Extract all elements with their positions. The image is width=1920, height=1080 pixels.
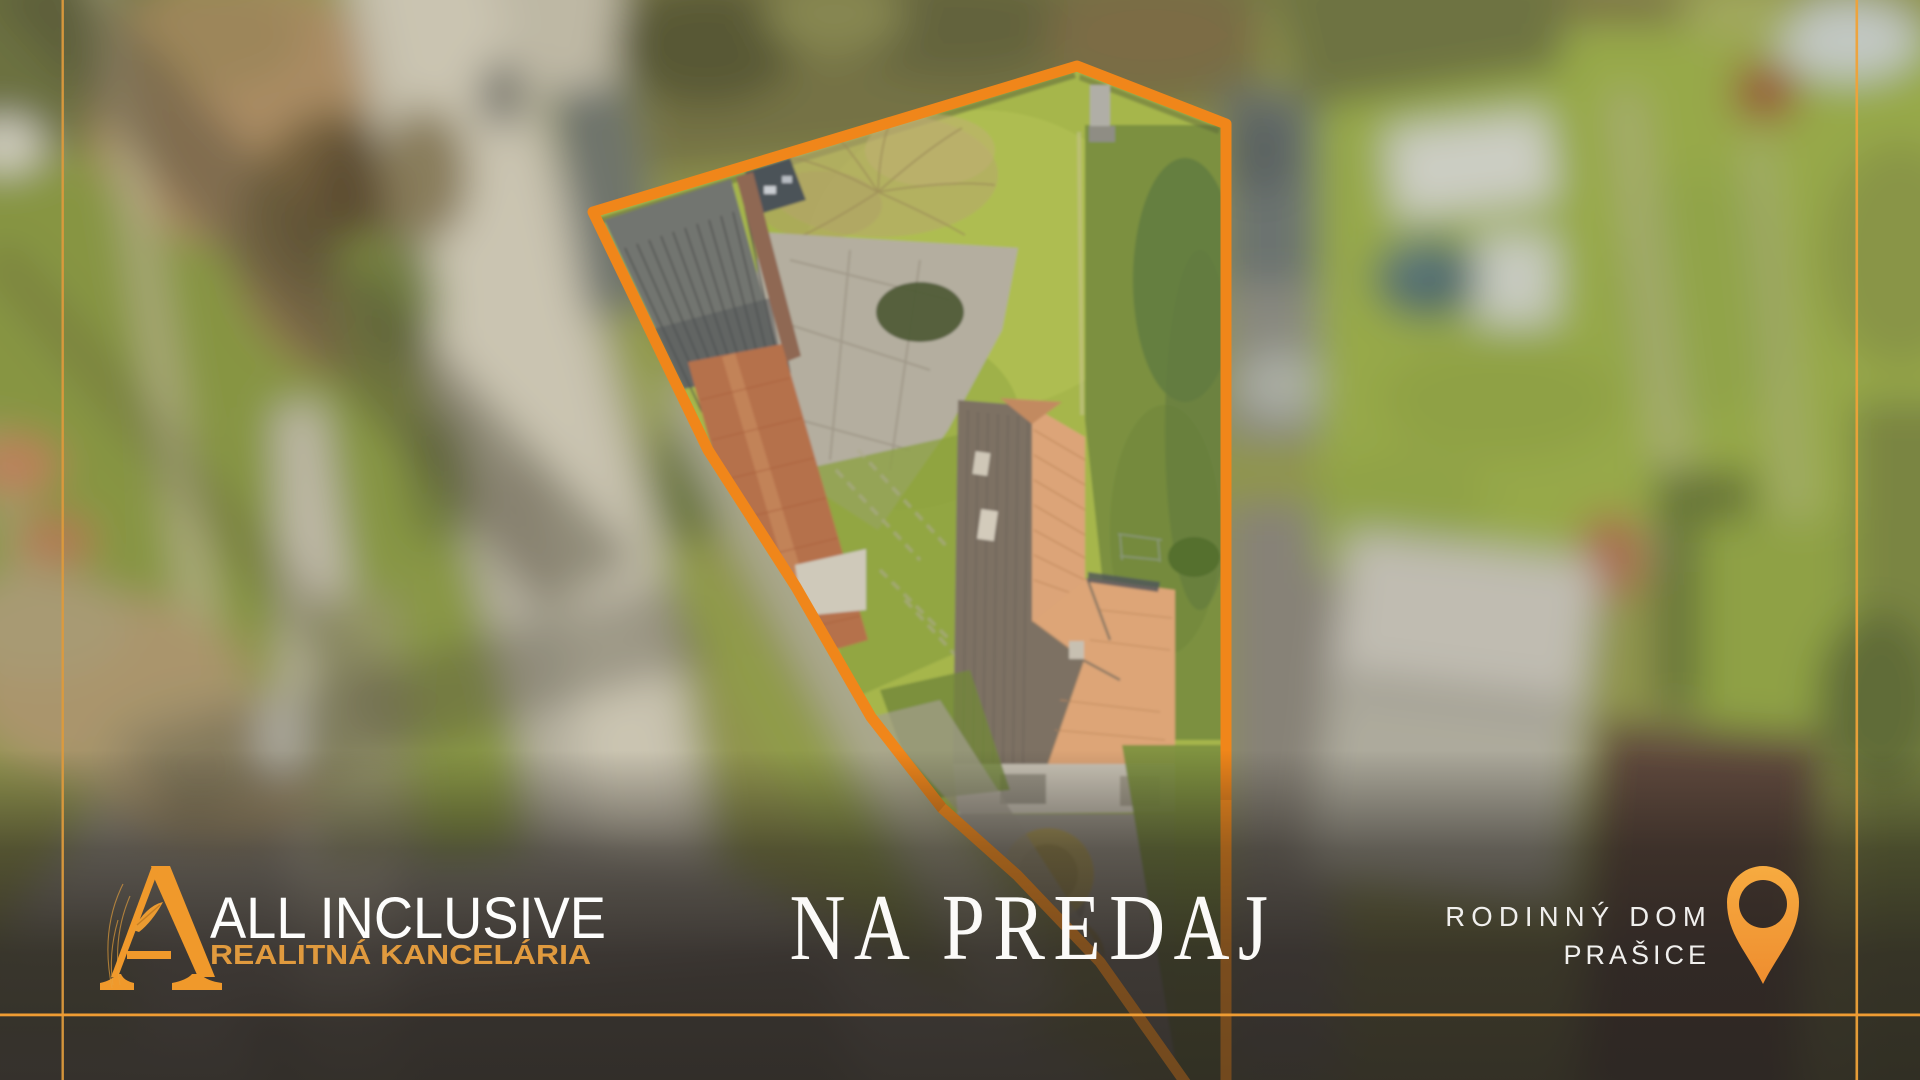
svg-text:RODINNÝ DOM: RODINNÝ DOM <box>1445 901 1712 932</box>
svg-text:NA PREDAJ: NA PREDAJ <box>790 877 1277 980</box>
svg-text:REALITNÁ KANCELÁRIA: REALITNÁ KANCELÁRIA <box>210 939 591 970</box>
svg-text:PRAŠICE: PRAŠICE <box>1563 939 1710 970</box>
